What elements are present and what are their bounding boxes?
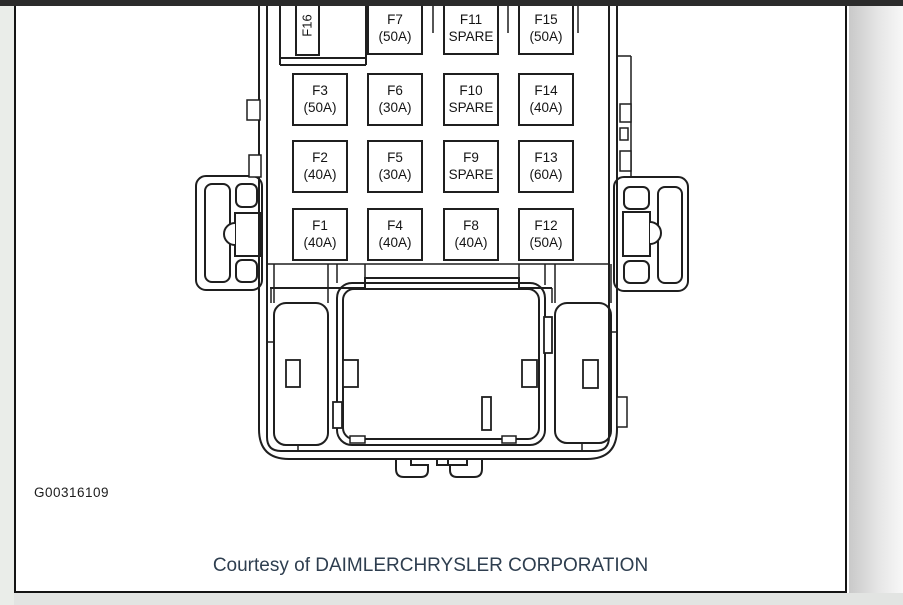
fuse-rating-label: SPARE <box>449 29 494 45</box>
fuse-rating-label: (60A) <box>529 167 562 183</box>
fuse-f13: F13 (60A) <box>518 140 574 193</box>
fuse-name-label: F4 <box>387 218 403 234</box>
fuse-rating-label: (50A) <box>303 100 336 116</box>
fuse-name-label: F8 <box>463 218 479 234</box>
fuse-name-label: F7 <box>387 12 403 28</box>
f16-compartment <box>280 0 366 65</box>
fuse-f2: F2 (40A) <box>292 140 348 193</box>
left-mounting-bracket <box>196 176 262 290</box>
fuse-name-label: F14 <box>534 83 557 99</box>
fuse-f3: F3 (50A) <box>292 73 348 126</box>
fuse-f1: F1 (40A) <box>292 208 348 261</box>
fuse-f5: F5 (30A) <box>367 140 423 193</box>
fuse-name-label: F15 <box>534 12 557 28</box>
right-mounting-bracket <box>614 177 688 291</box>
lower-compartment <box>267 264 617 451</box>
fuse-f16: F16 <box>295 0 320 56</box>
fuse-rating-label: (40A) <box>529 100 562 116</box>
fuse-rating-label: (50A) <box>529 29 562 45</box>
fuse-rating-label: (50A) <box>529 235 562 251</box>
fuse-rating-label: (40A) <box>378 235 411 251</box>
fuse-name-label: F12 <box>534 218 557 234</box>
fuse-f11: F11 SPARE <box>443 2 499 55</box>
fuse-name-label: F6 <box>387 83 403 99</box>
fuse-f9: F9 SPARE <box>443 140 499 193</box>
fuse-name-label: F3 <box>312 83 328 99</box>
fuse-rating-label: (30A) <box>378 100 411 116</box>
fuse-name-label: F1 <box>312 218 328 234</box>
fuse-f10: F10 SPARE <box>443 73 499 126</box>
fuse-name-label: F9 <box>463 150 479 166</box>
fuse-name-label: F10 <box>459 83 482 99</box>
fuse-rating-label: SPARE <box>449 167 494 183</box>
courtesy-caption: Courtesy of DAIMLERCHRYSLER CORPORATION <box>16 555 845 577</box>
fuse-f14: F14 (40A) <box>518 73 574 126</box>
fuse-rating-label: (40A) <box>303 167 336 183</box>
fuse-rating-label: (30A) <box>378 167 411 183</box>
fuse-rating-label: SPARE <box>449 100 494 116</box>
fuse-name-label: F11 <box>460 12 482 28</box>
fuse-name-label: F5 <box>387 150 403 166</box>
bottom-mount-hooks <box>396 459 482 477</box>
fuse-f6: F6 (30A) <box>367 73 423 126</box>
fuse-rating-label: (40A) <box>454 235 487 251</box>
fuse-f15: F15 (50A) <box>518 2 574 55</box>
fuse-f12: F12 (50A) <box>518 208 574 261</box>
viewer-top-bar <box>0 0 903 6</box>
figure-id: G00316109 <box>34 485 109 500</box>
fuse-f7: F7 (50A) <box>367 2 423 55</box>
fuse-rating-label: (50A) <box>378 29 411 45</box>
fuse-rating-label: (40A) <box>303 235 336 251</box>
fuse-name-label: F16 <box>300 14 315 36</box>
fuse-name-label: F13 <box>534 150 557 166</box>
fuse-f8: F8 (40A) <box>443 208 499 261</box>
viewer-left-margin <box>0 0 14 605</box>
fuse-name-label: F2 <box>312 150 328 166</box>
fuse-f4: F4 (40A) <box>367 208 423 261</box>
